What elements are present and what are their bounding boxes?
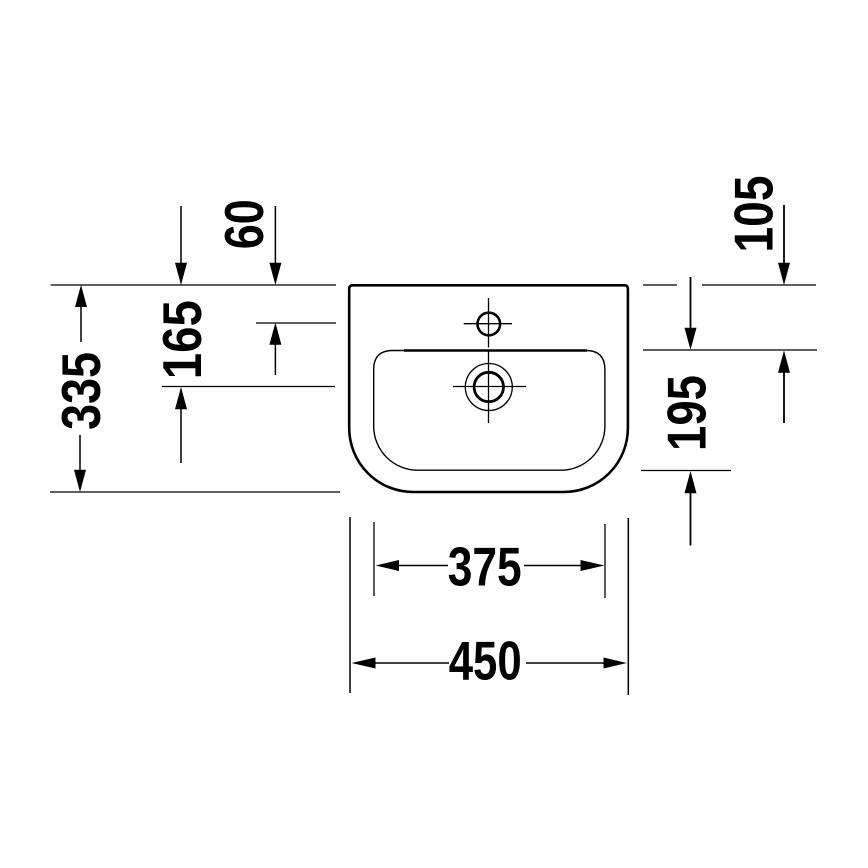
svg-text:60: 60: [213, 199, 275, 249]
svg-text:450: 450: [449, 629, 522, 691]
svg-text:105: 105: [723, 176, 785, 253]
svg-text:335: 335: [50, 352, 112, 430]
svg-text:375: 375: [448, 535, 522, 597]
svg-text:195: 195: [656, 375, 718, 451]
svg-text:165: 165: [151, 300, 213, 379]
